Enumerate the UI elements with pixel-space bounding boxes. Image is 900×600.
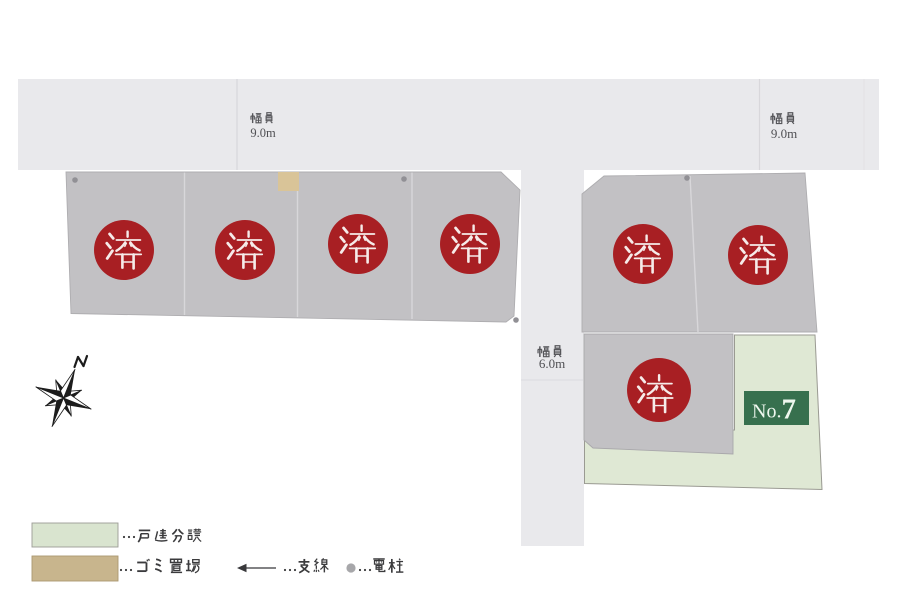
svg-text:9.0m: 9.0m xyxy=(771,126,797,141)
svg-text:9.0m: 9.0m xyxy=(250,126,276,140)
svg-text:6.0m: 6.0m xyxy=(539,356,565,371)
